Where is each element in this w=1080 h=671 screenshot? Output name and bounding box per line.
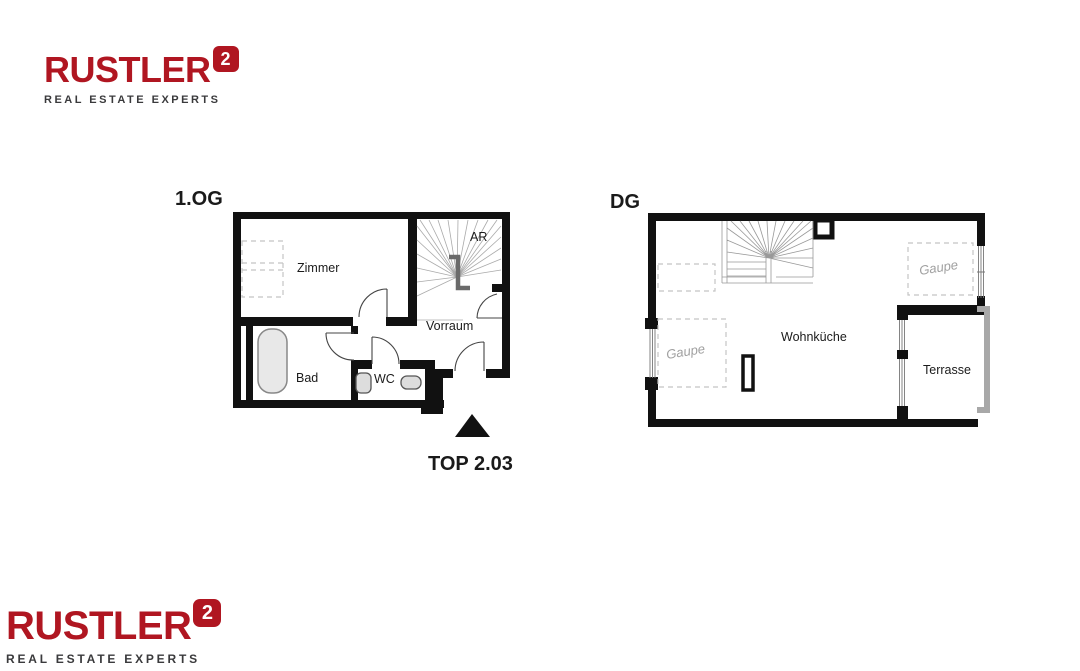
floorplan-page: RUSTLER 2 REAL ESTATE EXPERTS RUSTLER 2 …: [0, 0, 1080, 671]
rustler-mark-icon: 2: [213, 46, 239, 72]
chimney: [815, 220, 832, 237]
room-label-zimmer: Zimmer: [297, 261, 339, 275]
room-label-wohnkueche: Wohnküche: [781, 330, 847, 344]
room-label-vorraum: Vorraum: [426, 319, 473, 333]
plan-title-og: 1.OG: [175, 188, 223, 211]
room-label-bad: Bad: [296, 371, 318, 385]
entrance-arrow-icon: [455, 414, 490, 437]
furniture-dashed-og: [242, 241, 283, 297]
plan-title-dg: DG: [610, 191, 640, 214]
unit-label: TOP 2.03: [428, 453, 513, 476]
rustler-logo-top: RUSTLER 2 REAL ESTATE EXPERTS: [44, 52, 239, 106]
room-label-terrasse: Terrasse: [923, 363, 971, 377]
terrace-railing: [977, 309, 987, 410]
rustler-mark-icon: 2: [193, 599, 221, 627]
rustler-tagline: REAL ESTATE EXPERTS: [44, 94, 239, 106]
rustler-wordmark: RUSTLER: [6, 606, 191, 646]
bathtub: [258, 329, 287, 393]
floorplan-dg: [645, 213, 987, 427]
rustler-logo-bottom: RUSTLER 2 REAL ESTATE EXPERTS: [6, 606, 221, 666]
room-label-wc: WC: [374, 372, 395, 386]
wc-sink: [356, 373, 371, 393]
room-label-ar: AR: [470, 230, 487, 244]
stairs-dg: [722, 221, 813, 283]
rustler-tagline: REAL ESTATE EXPERTS: [6, 652, 221, 666]
wc-toilet: [401, 376, 421, 389]
rustler-wordmark: RUSTLER: [44, 52, 211, 88]
column: [743, 356, 753, 390]
